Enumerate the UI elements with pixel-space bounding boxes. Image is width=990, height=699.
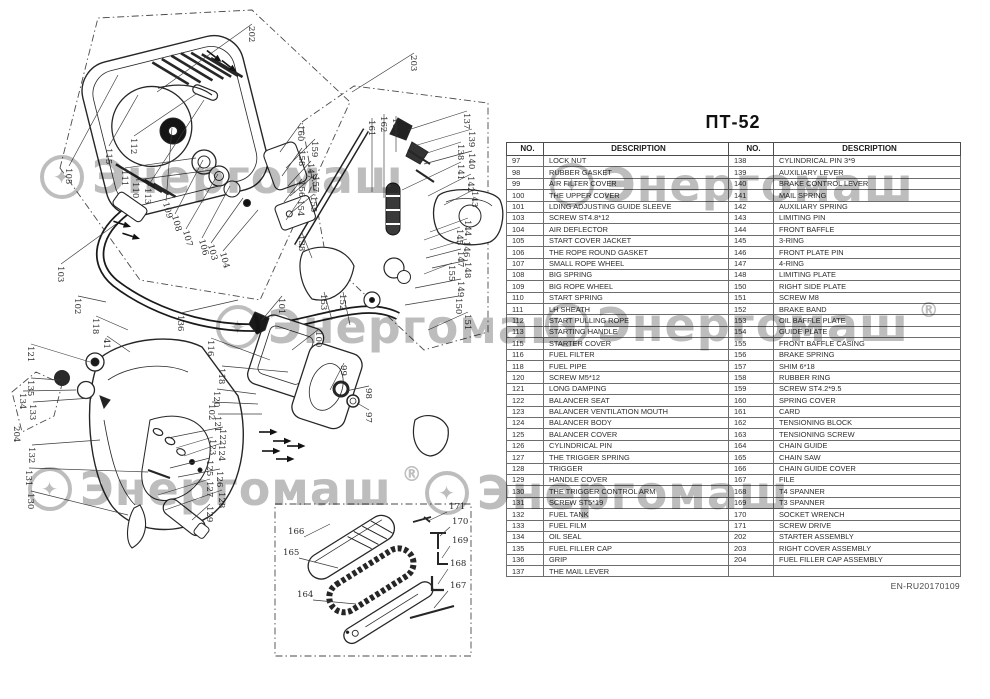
- screw-fastener-icon: [262, 448, 281, 454]
- callout-141: 141: [455, 164, 465, 180]
- part-number-cell: 120: [507, 372, 544, 383]
- callout-97: 97: [363, 412, 373, 423]
- callout-138: 138: [455, 144, 465, 160]
- callout-127: 127: [204, 481, 214, 497]
- part-number-cell: 163: [729, 429, 774, 440]
- part-number-cell: 170: [729, 509, 774, 520]
- callout-136: 136: [175, 315, 185, 331]
- callout-204: 204: [11, 426, 21, 443]
- part-description-cell: SCREW ST4.2*9.5: [774, 383, 961, 394]
- leader-line-133: [33, 398, 92, 402]
- part-number-cell: 166: [729, 463, 774, 474]
- part-number-cell: 125: [507, 429, 544, 440]
- callout-155: 155: [446, 265, 456, 281]
- part-description-cell: MAIL SPRING: [774, 190, 961, 201]
- part-description-cell: SMALL ROPE WHEEL: [544, 258, 729, 269]
- part-description-cell: TRIGGER: [544, 463, 729, 474]
- callout-41: 41: [101, 338, 111, 349]
- callout-139: 139: [466, 131, 476, 147]
- part-number-cell: 157: [729, 361, 774, 372]
- callout-157: 157: [310, 176, 320, 192]
- part-description-cell: LIMITING PIN: [774, 212, 961, 223]
- part-row: 120SCREW M5*12158RUBBER RING: [507, 372, 961, 383]
- part-row: 105START COVER JACKET1453-RING: [507, 235, 961, 246]
- part-number-cell: 98: [507, 167, 544, 178]
- part-description-cell: CHAIN GUIDE: [774, 440, 961, 451]
- part-row: 134OIL SEAL202STARTER ASSEMBLY: [507, 531, 961, 542]
- part-description-cell: TENSIONING BLOCK: [774, 417, 961, 428]
- part-description-cell: STARTER COVER: [544, 338, 729, 349]
- part-number-cell: 154: [729, 326, 774, 337]
- callout-124: 124: [216, 445, 226, 462]
- part-row: 103SCREW ST4.8*12143LIMITING PIN: [507, 212, 961, 223]
- part-row: 129HANDLE COVER167FILE: [507, 474, 961, 485]
- part-number-cell: 140: [729, 178, 774, 189]
- part-description-cell: CYLINDRICAL PIN: [544, 440, 729, 451]
- callout-171: 171: [449, 502, 465, 512]
- callout-133: 133: [27, 404, 37, 420]
- callout-167: 167: [450, 581, 466, 591]
- part-number-cell: 121: [507, 383, 544, 394]
- screw-fastener-icon: [121, 230, 141, 242]
- part-description-cell: BALANCER COVER: [544, 429, 729, 440]
- callout-156: 156: [296, 181, 306, 197]
- leader-line-168: [438, 569, 448, 584]
- part-row: 130THE TRIGGER CONTROL ARM168T4 SPANNER: [507, 486, 961, 497]
- part-number-cell: 168: [729, 486, 774, 497]
- leader-line-132: [32, 440, 100, 445]
- part-number-cell: 160: [729, 395, 774, 406]
- leader-line-203: [352, 53, 414, 92]
- part-number-cell: 103: [507, 212, 544, 223]
- part-description-cell: THE MAIL LEVER: [544, 566, 729, 577]
- part-number-cell: 152: [729, 304, 774, 315]
- part-number-cell: 128: [507, 463, 544, 474]
- exploded-parts-diagram: 2022031051151121111101131091081071061031…: [0, 0, 505, 699]
- part-number-cell: 115: [507, 338, 544, 349]
- part-number-cell: 116: [507, 349, 544, 360]
- part-row: 111LH SHEATH152BRAKE BAND: [507, 304, 961, 315]
- part-row: 100THE UPPER COVER141MAIL SPRING: [507, 190, 961, 201]
- part-number-cell: 123: [507, 406, 544, 417]
- part-number-cell: 111: [507, 304, 544, 315]
- part-number-cell: 159: [729, 383, 774, 394]
- part-number-cell: 150: [729, 281, 774, 292]
- callout-202: 202: [246, 26, 256, 42]
- callout-138: 138: [296, 235, 306, 251]
- part-number-cell: 156: [729, 349, 774, 360]
- part-description-cell: TENSIONING SCREW: [774, 429, 961, 440]
- part-row: 118FUEL PIPE157SHIM 6*18: [507, 361, 961, 372]
- part-number-cell: 101: [507, 201, 544, 212]
- callout-98: 98: [363, 388, 373, 399]
- part-number-cell: 122: [507, 395, 544, 406]
- part-description-cell: FUEL FILTER: [544, 349, 729, 360]
- callout-115: 115: [103, 148, 113, 164]
- callout-104: 104: [217, 251, 231, 270]
- part-number-cell: 137: [507, 566, 544, 577]
- part-description-cell: OIL BAFFLE PLATE: [774, 315, 961, 326]
- part-number-cell: 144: [729, 224, 774, 235]
- parts-table-container: NO. DESCRIPTION NO. DESCRIPTION 97LOCK N…: [506, 142, 960, 577]
- callout-110: 110: [130, 182, 140, 198]
- part-description-cell: HANDLE COVER: [544, 474, 729, 485]
- callout-159: 159: [309, 141, 319, 157]
- part-number-cell: 113: [507, 326, 544, 337]
- part-row: 97LOCK NUT138CYLINDRICAL PIN 3*9: [507, 156, 961, 167]
- part-number-cell: 136: [507, 554, 544, 565]
- model-title: ПТ-52: [506, 112, 960, 133]
- part-number-cell: 167: [729, 474, 774, 485]
- callout-113: 113: [142, 188, 152, 204]
- part-description-cell: THE TRIGGER CONTROL ARM: [544, 486, 729, 497]
- screw-fastener-icon: [287, 443, 306, 449]
- callout-161: 161: [366, 120, 376, 136]
- part-number-cell: 104: [507, 224, 544, 235]
- part-row: 113STARTING HANDLE154GUIDE PLATE: [507, 326, 961, 337]
- part-row: 127THE TRIGGER SPRING165CHAIN SAW: [507, 452, 961, 463]
- callout-107: 107: [180, 229, 194, 247]
- part-description-cell: FRONT PLATE PIN: [774, 247, 961, 258]
- parts-table: NO. DESCRIPTION NO. DESCRIPTION 97LOCK N…: [506, 142, 961, 577]
- part-number-cell: 161: [729, 406, 774, 417]
- callout-131: 131: [23, 470, 33, 486]
- part-number-cell: 118: [507, 361, 544, 372]
- part-description-cell: FUEL FILLER CAP: [544, 543, 729, 554]
- part-description-cell: RUBBER RING: [774, 372, 961, 383]
- part-description-cell: AUXILIARY SPRING: [774, 201, 961, 212]
- part-number-cell: 107: [507, 258, 544, 269]
- part-number-cell: 169: [729, 497, 774, 508]
- part-row: 121LONG DAMPING159SCREW ST4.2*9.5: [507, 383, 961, 394]
- leader-line-141: [402, 162, 461, 190]
- part-row: 132FUEL TANK170SOCKET WRENCH: [507, 509, 961, 520]
- document-code: EN-RU20170109: [760, 581, 960, 591]
- callout-103: 103: [205, 243, 219, 261]
- leader-line-103: [61, 224, 116, 264]
- part-row: 136GRIP204FUEL FILLER CAP ASSEMBLY: [507, 554, 961, 565]
- part-number-cell: 162: [729, 417, 774, 428]
- part-description-cell: SHIM 6*18: [774, 361, 961, 372]
- part-description-cell: CHAIN GUIDE COVER: [774, 463, 961, 474]
- part-description-cell: SOCKET WRENCH: [774, 509, 961, 520]
- part-number-cell: 204: [729, 554, 774, 565]
- part-number-cell: 105: [507, 235, 544, 246]
- part-description-cell: FRONT BAFFLE: [774, 224, 961, 235]
- part-number-cell: 108: [507, 269, 544, 280]
- part-description-cell: BIG SPRING: [544, 269, 729, 280]
- part-description-cell: START COVER JACKET: [544, 235, 729, 246]
- callout-134: 134: [17, 393, 27, 410]
- callout-132: 132: [26, 447, 36, 463]
- part-number-cell: 99: [507, 178, 544, 189]
- part-description-cell: GUIDE PLATE: [774, 326, 961, 337]
- part-description-cell: START SPRING: [544, 292, 729, 303]
- part-description-cell: BALANCER SEAT: [544, 395, 729, 406]
- callout-103: 103: [55, 266, 65, 282]
- callout-126: 126: [214, 471, 224, 487]
- part-row: 98RUBBER GASKET139AUXILIARY LEVER: [507, 167, 961, 178]
- part-row: 125BALANCER COVER163TENSIONING SCREW: [507, 429, 961, 440]
- table-header-row: NO. DESCRIPTION NO. DESCRIPTION: [507, 143, 961, 156]
- part-description-cell: SCREW M5*12: [544, 372, 729, 383]
- callout-140: 140: [466, 153, 476, 169]
- screw-fastener-icon: [259, 429, 278, 435]
- part-number-cell: 155: [729, 338, 774, 349]
- callout-108: 108: [169, 214, 183, 232]
- part-description-cell: LIMITING PLATE: [774, 269, 961, 280]
- part-number-cell: 135: [507, 543, 544, 554]
- part-description-cell: SPRING COVER: [774, 395, 961, 406]
- part-description-cell: SCREW DRIVE: [774, 520, 961, 531]
- part-description-cell: FUEL TANK: [544, 509, 729, 520]
- part-number-cell: 148: [729, 269, 774, 280]
- callout-154: 154: [295, 200, 305, 217]
- leader-line-170: [440, 527, 450, 536]
- part-number-cell: 100: [507, 190, 544, 201]
- callout-149: 149: [455, 281, 465, 297]
- leader-line-97: [357, 403, 369, 410]
- part-description-cell: FUEL FILLER CAP ASSEMBLY: [774, 554, 961, 565]
- callout-111: 111: [119, 170, 129, 186]
- part-description-cell: AIR FILTER COVER: [544, 178, 729, 189]
- part-number-cell: 126: [507, 440, 544, 451]
- callout-99: 99: [338, 365, 348, 376]
- callout-203: 203: [408, 55, 418, 71]
- callout-129: 129: [204, 506, 214, 522]
- callout-155: 155: [308, 196, 318, 212]
- part-number-cell: 141: [729, 190, 774, 201]
- part-number-cell: 138: [729, 156, 774, 167]
- callout-168: 168: [450, 559, 466, 569]
- leader-line-150: [405, 296, 459, 305]
- part-number-cell: 110: [507, 292, 544, 303]
- part-row: 107SMALL ROPE WHEEL1474-RING: [507, 258, 961, 269]
- part-row: 131SCREW ST5*19169T3 SPANNER: [507, 497, 961, 508]
- leader-line-137: [408, 111, 467, 130]
- callout-142: 142: [465, 176, 475, 192]
- part-number-cell: 171: [729, 520, 774, 531]
- part-row: 124BALANCER BODY162TENSIONING BLOCK: [507, 417, 961, 428]
- part-description-cell: LDING ADJUSTING GUIDE SLEEVE: [544, 201, 729, 212]
- part-number-cell: 133: [507, 520, 544, 531]
- part-description-cell: [774, 566, 961, 577]
- leader-line-104: [223, 210, 258, 251]
- part-row: 104AIR DEFLECTOR144FRONT BAFFLE: [507, 224, 961, 235]
- callout-166: 166: [288, 527, 304, 537]
- part-row: 122BALANCER SEAT160SPRING COVER: [507, 395, 961, 406]
- leader-line-151: [428, 312, 468, 330]
- part-row: 109BIG ROPE WHEEL150RIGHT SIDE PLATE: [507, 281, 961, 292]
- part-description-cell: BIG ROPE WHEEL: [544, 281, 729, 292]
- part-row: 101LDING ADJUSTING GUIDE SLEEVE142AUXILI…: [507, 201, 961, 212]
- part-number-cell: 203: [729, 543, 774, 554]
- callout-123: 123: [207, 439, 217, 455]
- callout-105: 105: [63, 168, 73, 184]
- part-description-cell: 4-RING: [774, 258, 961, 269]
- part-description-cell: STARTER ASSEMBLY: [774, 531, 961, 542]
- parts-catalog-page: 2022031051151121111101131091081071061031…: [0, 0, 990, 699]
- part-description-cell: GRIP: [544, 554, 729, 565]
- part-description-cell: AIR DEFLECTOR: [544, 224, 729, 235]
- callout-163: 163: [390, 118, 400, 134]
- part-number-cell: 142: [729, 201, 774, 212]
- part-description-cell: STARTING HANDLE: [544, 326, 729, 337]
- part-description-cell: LOCK NUT: [544, 156, 729, 167]
- part-row: 133FUEL FILM171SCREW DRIVE: [507, 520, 961, 531]
- leader-line-103: [211, 198, 243, 243]
- part-number-cell: 139: [729, 167, 774, 178]
- callout-164: 164: [297, 590, 314, 600]
- part-description-cell: CARD: [774, 406, 961, 417]
- part-number-cell: 127: [507, 452, 544, 463]
- part-description-cell: BRAKE SPRING: [774, 349, 961, 360]
- header-description-right: DESCRIPTION: [774, 143, 961, 156]
- part-number-cell: 109: [507, 281, 544, 292]
- callout-165: 165: [283, 548, 299, 558]
- part-number-cell: 143: [729, 212, 774, 223]
- leader-line-169: [442, 546, 450, 558]
- callout-143: 143: [469, 191, 479, 207]
- screw-fastener-icon: [273, 438, 292, 444]
- part-number-cell: 165: [729, 452, 774, 463]
- leader-line-121: [31, 344, 90, 362]
- callout-116: 116: [205, 340, 215, 356]
- part-description-cell: T3 SPANNER: [774, 497, 961, 508]
- screw-fastener-icon: [276, 456, 295, 462]
- part-description-cell: CYLINDRICAL PIN 3*9: [774, 156, 961, 167]
- front-handle-drawing: [100, 191, 398, 328]
- part-row: 99AIR FILTER COVER140BRAKE CONTROL LEVER: [507, 178, 961, 189]
- part-description-cell: FRONT BAFFLE CASING: [774, 338, 961, 349]
- part-number-cell: 147: [729, 258, 774, 269]
- part-number-cell: 134: [507, 531, 544, 542]
- callout-151: 151: [462, 314, 472, 330]
- part-description-cell: BALANCER BODY: [544, 417, 729, 428]
- callout-118: 118: [90, 318, 100, 334]
- part-description-cell: CHAIN SAW: [774, 452, 961, 463]
- part-number-cell: 124: [507, 417, 544, 428]
- header-no-left: NO.: [507, 143, 544, 156]
- part-row: 106THE ROPE ROUND GASKET146FRONT PLATE P…: [507, 247, 961, 258]
- part-description-cell: THE TRIGGER SPRING: [544, 452, 729, 463]
- callout-170: 170: [452, 517, 468, 527]
- part-description-cell: SCREW M8: [774, 292, 961, 303]
- part-row: 128TRIGGER166CHAIN GUIDE COVER: [507, 463, 961, 474]
- callout-130: 130: [25, 493, 35, 509]
- part-description-cell: RUBBER GASKET: [544, 167, 729, 178]
- part-number-cell: 164: [729, 440, 774, 451]
- callout-118: 118: [216, 368, 226, 384]
- callout-101: 101: [276, 298, 286, 314]
- part-description-cell: SCREW ST5*19: [544, 497, 729, 508]
- part-description-cell: OIL SEAL: [544, 531, 729, 542]
- leader-line-138: [418, 142, 461, 156]
- part-description-cell: 3-RING: [774, 235, 961, 246]
- part-number-cell: [729, 566, 774, 577]
- part-number-cell: 151: [729, 292, 774, 303]
- part-description-cell: RIGHT SIDE PLATE: [774, 281, 961, 292]
- part-description-cell: BALANCER VENTILATION MOUTH: [544, 406, 729, 417]
- callout-150: 150: [453, 298, 463, 314]
- part-row: 116FUEL FILTER156BRAKE SPRING: [507, 349, 961, 360]
- part-description-cell: FUEL FILM: [544, 520, 729, 531]
- callout-128: 128: [216, 492, 226, 508]
- part-row: 126CYLINDRICAL PIN164CHAIN GUIDE: [507, 440, 961, 451]
- leader-line-166: [304, 524, 330, 537]
- part-description-cell: BRAKE CONTROL LEVER: [774, 178, 961, 189]
- part-row: 135FUEL FILLER CAP203RIGHT COVER ASSEMBL…: [507, 543, 961, 554]
- callout-137: 137: [461, 113, 471, 129]
- callout-125: 125: [204, 460, 214, 476]
- part-row: 110START SPRING151SCREW M8: [507, 292, 961, 303]
- leader-line-167: [434, 591, 448, 608]
- callout-153: 153: [318, 294, 328, 310]
- part-number-cell: 112: [507, 315, 544, 326]
- leader-line-136: [181, 300, 238, 313]
- callout-158: 158: [296, 150, 306, 166]
- part-description-cell: RIGHT COVER ASSEMBLY: [774, 543, 961, 554]
- part-description-cell: THE ROPE ROUND GASKET: [544, 247, 729, 258]
- part-row: 112START PULLING ROPE153OIL BAFFLE PLATE: [507, 315, 961, 326]
- part-description-cell: T4 SPANNER: [774, 486, 961, 497]
- part-description-cell: THE UPPER COVER: [544, 190, 729, 201]
- callout-160: 160: [295, 125, 305, 141]
- part-row: 108BIG SPRING148LIMITING PLATE: [507, 269, 961, 280]
- part-description-cell: LONG DAMPING: [544, 383, 729, 394]
- part-row: 115STARTER COVER155FRONT BAFFLE CASING: [507, 338, 961, 349]
- part-description-cell: BRAKE BAND: [774, 304, 961, 315]
- part-number-cell: 132: [507, 509, 544, 520]
- callout-100: 100: [313, 331, 323, 347]
- part-row: 137THE MAIL LEVER: [507, 566, 961, 577]
- part-number-cell: 158: [729, 372, 774, 383]
- callout-102: 102: [72, 298, 82, 314]
- part-number-cell: 202: [729, 531, 774, 542]
- chain-and-tools-drawing: [303, 510, 454, 646]
- part-description-cell: FUEL PIPE: [544, 361, 729, 372]
- callout-122: 122: [217, 429, 227, 445]
- header-description-left: DESCRIPTION: [544, 143, 729, 156]
- part-number-cell: 146: [729, 247, 774, 258]
- callout-112: 112: [128, 138, 138, 154]
- part-description-cell: START PULLING ROPE: [544, 315, 729, 326]
- part-number-cell: 106: [507, 247, 544, 258]
- part-description-cell: FILE: [774, 474, 961, 485]
- part-description-cell: LH SHEATH: [544, 304, 729, 315]
- part-number-cell: 130: [507, 486, 544, 497]
- header-no-right: NO.: [729, 143, 774, 156]
- part-number-cell: 131: [507, 497, 544, 508]
- part-number-cell: 153: [729, 315, 774, 326]
- part-description-cell: SCREW ST4.8*12: [544, 212, 729, 223]
- callout-121: 121: [25, 346, 35, 362]
- callout-152: 152: [337, 294, 347, 310]
- part-number-cell: 145: [729, 235, 774, 246]
- part-row: 123BALANCER VENTILATION MOUTH161CARD: [507, 406, 961, 417]
- part-description-cell: AUXILIARY LEVER: [774, 167, 961, 178]
- callout-148: 148: [462, 262, 472, 278]
- callout-169: 169: [452, 536, 468, 546]
- part-number-cell: 97: [507, 156, 544, 167]
- leader-line-164: [313, 600, 356, 604]
- part-number-cell: 129: [507, 474, 544, 485]
- callout-162: 162: [378, 116, 388, 132]
